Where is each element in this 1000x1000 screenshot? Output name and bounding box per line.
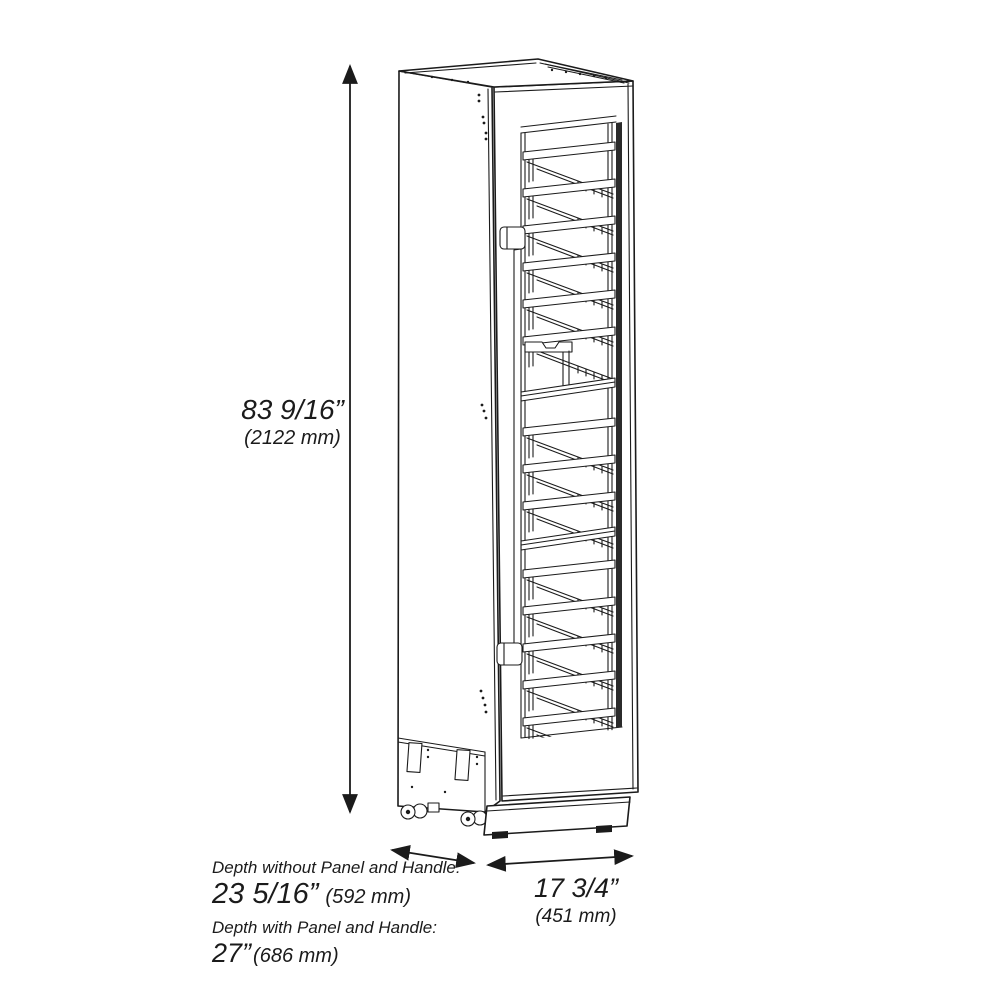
dimension-diagram: 83 9/16” (2122 mm) Depth without Panel a… bbox=[0, 0, 1000, 1000]
depth-without-panel-inches: 23 5/16” bbox=[212, 878, 318, 910]
width-dimension-arrow bbox=[488, 856, 632, 865]
depth-with-panel-caption: Depth with Panel and Handle: bbox=[212, 917, 461, 938]
depth-without-panel-value: 23 5/16”(592 mm) bbox=[212, 878, 461, 914]
cabinet-side-panel bbox=[398, 71, 500, 812]
base-kick-plate bbox=[484, 797, 630, 839]
height-value-inches: 83 9/16” bbox=[210, 394, 375, 426]
width-value-inches: 17 3/4” bbox=[490, 873, 662, 903]
glass-right-edge-shadow bbox=[616, 122, 622, 728]
depth-without-panel-caption: Depth without Panel and Handle: bbox=[212, 857, 461, 878]
height-value-mm: (2122 mm) bbox=[210, 426, 375, 450]
width-dimension-label: 17 3/4” (451 mm) bbox=[490, 873, 662, 928]
depth-with-panel-mm: (686 mm) bbox=[253, 945, 339, 967]
depth-without-panel-mm: (592 mm) bbox=[325, 886, 411, 908]
height-dimension-label: 83 9/16” (2122 mm) bbox=[210, 394, 375, 450]
wine-cooler-line-drawing bbox=[0, 0, 1000, 1000]
depth-with-panel-value: 27”(686 mm) bbox=[212, 938, 461, 972]
depth-with-panel-inches: 27” bbox=[212, 938, 251, 968]
width-value-mm: (451 mm) bbox=[490, 905, 662, 928]
depth-dimension-labels: Depth without Panel and Handle: 23 5/16”… bbox=[212, 857, 461, 972]
